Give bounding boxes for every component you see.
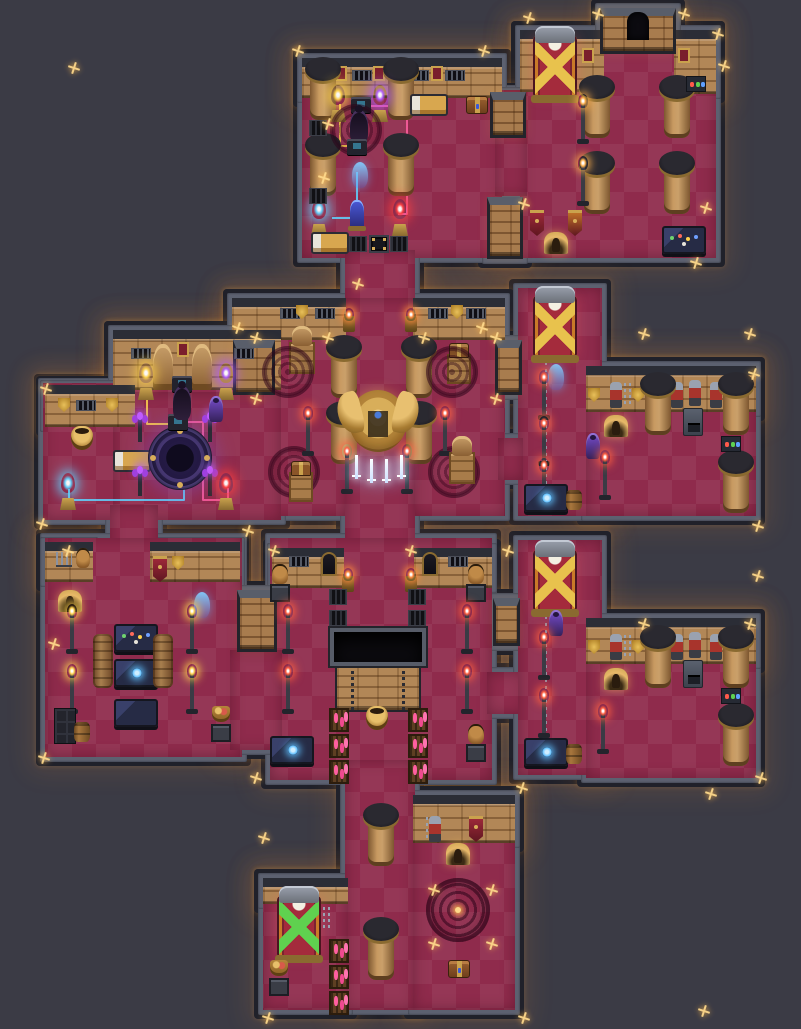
pillar-sprite <box>723 385 749 435</box>
stand-torch-sprite <box>463 672 471 714</box>
sparkle-icon <box>703 786 718 801</box>
pillar-sprite <box>664 88 690 138</box>
shelf-potions-sprite <box>721 436 741 452</box>
window-sprite <box>448 556 468 567</box>
sparkle-icon <box>750 568 765 583</box>
tentacle-grate-sprite <box>408 734 428 758</box>
window-sprite <box>428 308 448 319</box>
pillar-sprite <box>388 146 414 196</box>
alcove-figure-sprite[interactable] <box>604 415 628 437</box>
floor-tiles <box>230 650 282 750</box>
figure-robed-sprite[interactable] <box>209 396 223 422</box>
window-sprite <box>234 348 254 359</box>
chest-gold-sprite[interactable] <box>466 96 488 114</box>
stand-torch-sprite <box>188 672 196 714</box>
ghost-sprite[interactable] <box>352 162 368 188</box>
stand-torch-sprite <box>284 612 292 654</box>
crate-stack-sprite[interactable] <box>54 708 76 744</box>
sparkle-icon <box>688 255 703 270</box>
floor-tiles <box>498 438 523 480</box>
pillar-sprite <box>645 385 671 435</box>
window-sprite <box>466 308 486 319</box>
table-artifact-sprite[interactable] <box>114 659 158 687</box>
portal-sprite[interactable] <box>148 426 212 490</box>
alcove-figure-sprite[interactable] <box>604 668 628 690</box>
tentacle-grate-sprite <box>329 708 349 732</box>
pillar-sprite <box>368 930 394 980</box>
bed-sprite <box>113 450 151 472</box>
candelabrum-sprite <box>134 470 146 496</box>
tentacle-grate-sprite <box>408 708 428 732</box>
sconce-sprite <box>405 316 417 332</box>
barrel-sprite[interactable] <box>566 744 582 764</box>
pillar-sprite <box>645 638 671 688</box>
pillar-sprite <box>723 638 749 688</box>
shelf-potions-sprite <box>686 76 706 92</box>
tentacle-grate-sprite <box>408 760 428 784</box>
chest-gold-sprite[interactable] <box>448 960 470 978</box>
shrine-red-sprite[interactable] <box>533 36 577 98</box>
basket-pedestal-sprite[interactable] <box>269 958 289 996</box>
stand-torch-sprite <box>284 672 292 714</box>
grate-sprite <box>329 610 347 626</box>
tentacle-grate-sprite <box>329 991 349 1015</box>
shelf-potions-sprite <box>721 688 741 704</box>
torch-sprite <box>58 480 78 510</box>
brazier-urn-sprite[interactable] <box>366 706 388 730</box>
stand-torch-sprite <box>579 164 587 206</box>
grate-sprite <box>390 236 408 252</box>
barrel-sprite[interactable] <box>74 722 90 742</box>
stand-torch-sprite <box>540 638 548 680</box>
picture-sprite <box>177 342 189 357</box>
grate-sprite <box>329 589 347 605</box>
barrel-sprite[interactable] <box>566 490 582 510</box>
dungeon-map[interactable] <box>0 0 801 1029</box>
sparkle-icon <box>66 60 81 75</box>
grate-sprite <box>309 188 327 204</box>
furnace-sprite <box>683 408 703 436</box>
stand-torch-sprite <box>463 612 471 654</box>
table-alchemy-sprite[interactable] <box>662 226 706 254</box>
door-arch-sprite[interactable] <box>422 552 438 576</box>
window-sprite <box>445 70 465 81</box>
stand-torch-sprite <box>540 696 548 738</box>
alcove-figure-sprite[interactable] <box>544 232 568 254</box>
shrine-red-sprite[interactable] <box>533 550 577 612</box>
pit-sprite <box>330 628 426 666</box>
light-sword-sprite <box>396 455 406 485</box>
sparkle-icon <box>742 326 757 341</box>
picture-sprite <box>582 48 594 63</box>
brazier-urn-sprite[interactable] <box>71 426 93 450</box>
window-sprite <box>315 308 335 319</box>
table-dark-sprite <box>114 699 158 727</box>
statue-pedestal-sprite[interactable] <box>449 452 475 484</box>
tentacle-grate-sprite <box>329 939 349 963</box>
chains-sprite <box>622 632 632 656</box>
armor-stand-sprite <box>689 380 701 406</box>
throne-sprite[interactable] <box>349 390 407 452</box>
sparkle-icon <box>256 830 271 845</box>
bed-sprite <box>410 94 448 116</box>
tentacle-grate-sprite <box>329 760 349 784</box>
stand-torch-sprite <box>441 414 449 456</box>
shrine-red-sprite[interactable] <box>533 296 577 358</box>
sparkle-icon <box>260 1010 275 1025</box>
chest-pedestal-sprite[interactable] <box>289 472 313 502</box>
pillar-sprite <box>584 88 610 138</box>
window-sprite <box>289 556 309 567</box>
tentacle-grate-sprite <box>329 965 349 989</box>
bed-sprite <box>311 232 349 254</box>
stand-torch-sprite <box>540 378 548 420</box>
wall-tower <box>495 340 522 395</box>
pillar-sprite <box>368 816 394 866</box>
stub-door-sprite[interactable] <box>627 12 649 40</box>
jar-small-sprite <box>76 548 90 568</box>
pillar-sprite <box>723 716 749 766</box>
carved-pillar-sprite <box>93 634 113 688</box>
jar-pedestal-sprite[interactable] <box>270 564 290 602</box>
figure-robed-sprite[interactable] <box>586 433 600 459</box>
shrine-green-sprite[interactable] <box>277 896 321 958</box>
armor-stand-sprite <box>610 634 622 660</box>
light-sword-sprite <box>381 459 391 489</box>
stand-torch-sprite <box>304 414 312 456</box>
alcove-figure-sprite[interactable] <box>446 843 470 865</box>
caryatid-sprite <box>153 344 173 390</box>
sparkle-icon <box>636 326 651 341</box>
sparkle-icon <box>696 1003 711 1018</box>
sigil-sprite <box>262 346 314 398</box>
jar-pedestal-sprite[interactable] <box>466 724 486 762</box>
sparkle-icon <box>750 518 765 533</box>
armor-stand-sprite <box>610 382 622 408</box>
wall-tower <box>490 92 526 138</box>
light-sword-sprite <box>366 459 376 489</box>
console-sprite[interactable] <box>347 139 367 155</box>
wall-tower <box>493 598 520 646</box>
ghost-sprite[interactable] <box>548 364 564 390</box>
window-sprite <box>352 70 372 81</box>
basket-pedestal-sprite[interactable] <box>211 704 231 742</box>
window-sprite <box>131 348 151 359</box>
grate-sprite <box>349 236 367 252</box>
light-sword-sprite <box>351 455 361 485</box>
tentacle-grate-sprite <box>329 734 349 758</box>
candelabrum-sprite <box>204 470 216 496</box>
armor-stand-sprite <box>429 816 441 842</box>
chains-sprite <box>622 380 632 404</box>
furnace-sprite <box>683 660 703 688</box>
table-artifact-sprite[interactable] <box>270 736 314 764</box>
hatch-sprite[interactable] <box>369 235 389 253</box>
stand-torch-sprite <box>343 452 351 494</box>
stand-torch-sprite <box>188 612 196 654</box>
torch-sprite <box>390 206 410 236</box>
candelabrum-sprite <box>134 416 146 442</box>
carved-pillar-sprite <box>153 634 173 688</box>
armor-stand-sprite <box>689 632 701 658</box>
jar-pedestal-sprite[interactable] <box>466 564 486 602</box>
door-arch-sprite[interactable] <box>321 552 337 576</box>
pillar-sprite <box>664 164 690 214</box>
window-sprite <box>76 400 96 411</box>
torch-sprite <box>216 370 236 400</box>
torch-sprite <box>136 370 156 400</box>
figure-robed-sprite[interactable] <box>549 610 563 636</box>
figure-shrine-sprite[interactable] <box>350 200 364 228</box>
sigil-sprite <box>426 346 478 398</box>
stand-torch-sprite <box>599 712 607 754</box>
caryatid-sprite <box>192 344 212 390</box>
chains-sprite <box>321 904 331 928</box>
stand-torch-sprite <box>68 612 76 654</box>
table-artifact-sprite[interactable] <box>524 484 568 512</box>
torch-sprite <box>216 480 236 510</box>
table-alchemy-sprite[interactable] <box>114 624 158 652</box>
stand-torch-sprite <box>579 102 587 144</box>
sparkle-icon <box>516 1010 531 1025</box>
sconce-sprite <box>343 316 355 332</box>
grate-sprite <box>408 610 426 626</box>
boss-statue-sprite[interactable] <box>173 386 191 420</box>
picture-sprite <box>678 48 690 63</box>
pillar-sprite <box>723 463 749 513</box>
stand-torch-sprite <box>601 458 609 500</box>
table-artifact-sprite[interactable] <box>524 738 568 766</box>
pillar-sprite <box>584 164 610 214</box>
grate-sprite <box>408 589 426 605</box>
picture-sprite <box>431 66 443 81</box>
